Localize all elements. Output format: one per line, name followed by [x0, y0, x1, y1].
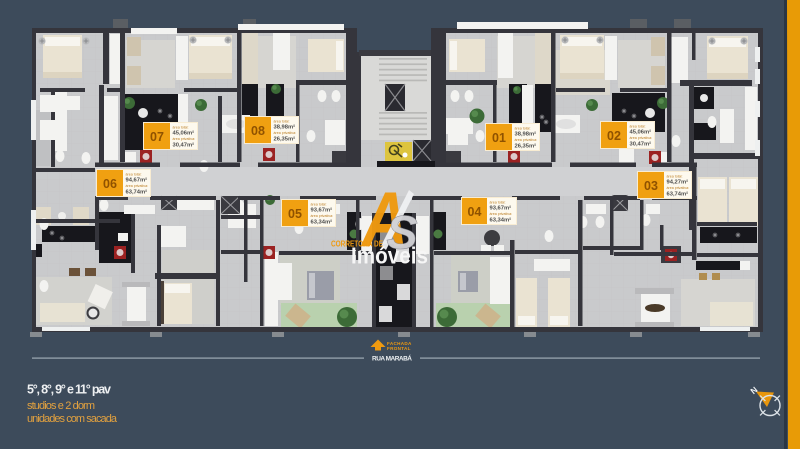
svg-text:63,74m²: 63,74m²: [126, 189, 148, 196]
svg-text:45,06m²: 45,06m²: [173, 130, 195, 137]
svg-text:área total:: área total:: [515, 127, 531, 131]
svg-text:04: 04: [468, 205, 482, 219]
svg-text:FRONTAL: FRONTAL: [387, 346, 411, 351]
svg-text:área privativa:: área privativa:: [490, 212, 513, 216]
svg-text:08: 08: [251, 124, 265, 138]
svg-text:45,06m²: 45,06m²: [630, 129, 652, 136]
svg-text:5°, 8°, 9° e 11° pav: 5°, 8°, 9° e 11° pav: [27, 383, 111, 397]
svg-text:área privativa:: área privativa:: [667, 186, 690, 190]
svg-text:93,67m²: 93,67m²: [311, 207, 333, 214]
svg-text:área privativa:: área privativa:: [126, 184, 149, 188]
svg-text:94,27m²: 94,27m²: [667, 179, 689, 186]
svg-text:26,35m²: 26,35m²: [274, 136, 296, 143]
svg-text:área total:: área total:: [126, 173, 142, 177]
svg-text:03: 03: [644, 179, 658, 193]
svg-text:38,98m²: 38,98m²: [274, 124, 296, 131]
svg-text:07: 07: [150, 130, 164, 144]
svg-text:área total:: área total:: [311, 203, 327, 207]
svg-text:área privativa:: área privativa:: [274, 131, 297, 135]
svg-text:30,47m²: 30,47m²: [173, 142, 195, 149]
svg-text:área privativa:: área privativa:: [311, 214, 334, 218]
svg-text:área total:: área total:: [173, 126, 189, 130]
svg-text:RUA MARABÁ: RUA MARABÁ: [372, 354, 412, 363]
svg-text:área total:: área total:: [630, 125, 646, 129]
svg-text:05: 05: [288, 207, 302, 221]
svg-text:área privativa:: área privativa:: [630, 136, 653, 140]
svg-text:área privativa:: área privativa:: [173, 137, 196, 141]
svg-text:93,67m²: 93,67m²: [490, 205, 512, 212]
svg-text:06: 06: [103, 177, 117, 191]
svg-text:63,74m²: 63,74m²: [667, 191, 689, 198]
svg-text:área privativa:: área privativa:: [515, 138, 538, 142]
svg-text:63,34m²: 63,34m²: [490, 217, 512, 224]
svg-text:63,34m²: 63,34m²: [311, 219, 333, 226]
svg-text:01: 01: [492, 131, 506, 145]
svg-text:studios e 2 dorm: studios e 2 dorm: [27, 400, 95, 412]
svg-text:38,98m²: 38,98m²: [515, 131, 537, 138]
svg-text:unidades com sacada: unidades com sacada: [27, 413, 118, 425]
svg-text:94,67m²: 94,67m²: [126, 177, 148, 184]
svg-text:02: 02: [607, 129, 621, 143]
svg-text:30,47m²: 30,47m²: [630, 141, 652, 148]
svg-text:26,35m²: 26,35m²: [515, 143, 537, 150]
svg-text:área total:: área total:: [490, 201, 506, 205]
svg-text:Imóveis: Imóveis: [351, 243, 428, 269]
svg-text:área total:: área total:: [274, 120, 290, 124]
svg-text:área total:: área total:: [667, 175, 683, 179]
